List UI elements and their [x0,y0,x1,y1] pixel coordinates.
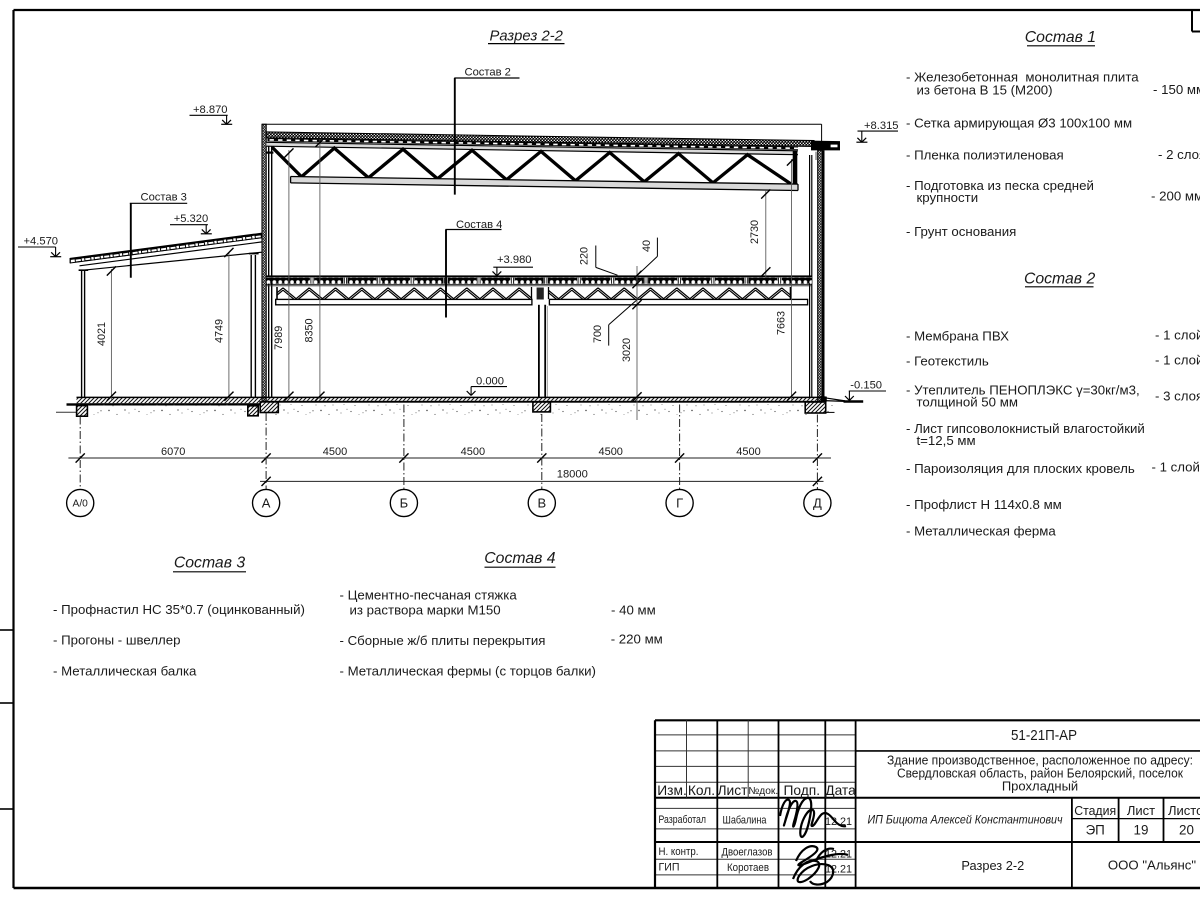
svg-text:+3.980: +3.980 [497,254,532,266]
svg-text:Лист: Лист [718,783,749,798]
svg-text:Состав 3: Состав 3 [141,191,187,203]
svg-text:ИП Бицюта Алексей Константинов: ИП Бицюта Алексей Константинович [868,813,1064,827]
svg-text:Кол.: Кол. [688,783,715,798]
svg-text:- 3 слоя: - 3 слоя [1155,389,1200,404]
svg-text:700: 700 [592,325,604,343]
svg-text:- 1 слой: - 1 слой [1155,353,1200,368]
svg-text:Г: Г [676,495,683,510]
svg-text:40: 40 [641,240,653,252]
svg-text:Двоеглазов: Двоеглазов [722,847,773,859]
svg-text:4749: 4749 [214,319,226,343]
svg-text:Состав 2: Состав 2 [465,66,511,78]
svg-text:t=12,5 мм: t=12,5 мм [917,433,976,448]
svg-text:- Грунт основания: - Грунт основания [906,224,1016,239]
svg-text:4500: 4500 [598,446,622,458]
svg-text:4500: 4500 [323,446,347,458]
svg-text:+8.315: +8.315 [864,120,899,132]
svg-text:7989: 7989 [273,326,285,350]
svg-text:2730: 2730 [749,220,761,244]
svg-text:Коротаев: Коротаев [727,862,769,874]
svg-text:крупности: крупности [917,190,979,205]
svg-text:- Сборные ж/б плиты перекрытия: - Сборные ж/б плиты перекрытия [340,633,546,648]
svg-text:- Профлист Н 114х0.8 мм: - Профлист Н 114х0.8 мм [906,497,1062,512]
svg-text:- Прогоны - швеллер: - Прогоны - швеллер [53,633,181,648]
svg-text:4500: 4500 [736,446,760,458]
svg-text:+5.320: +5.320 [174,213,209,225]
svg-text:- Пленка полиэтиленовая: - Пленка полиэтиленовая [906,148,1064,163]
svg-text:20: 20 [1179,823,1194,838]
svg-text:18000: 18000 [557,469,588,481]
svg-text:Дата: Дата [825,783,856,798]
svg-text:Б: Б [400,495,409,510]
svg-text:Н. контр.: Н. контр. [659,846,699,858]
svg-text:4500: 4500 [461,446,485,458]
svg-text:-0.150: -0.150 [850,379,882,391]
svg-text:Листов: Листов [1168,803,1200,818]
svg-text:- Геотекстиль: - Геотекстиль [906,354,989,369]
svg-text:Разработал: Разработал [659,814,707,826]
svg-text:- Мембрана ПВХ: - Мембрана ПВХ [906,329,1009,344]
svg-text:6070: 6070 [161,446,185,458]
svg-text:- Металлическая балка: - Металлическая балка [53,663,197,678]
svg-text:№док.: №док. [748,786,778,797]
svg-text:- Металлическая фермы (с торцо: - Металлическая фермы (с торцов балки) [340,664,596,679]
svg-text:Стадия: Стадия [1074,803,1116,818]
svg-text:7663: 7663 [776,311,788,335]
svg-text:В: В [537,495,546,510]
svg-text:- Пароизоляция для плоских кро: - Пароизоляция для плоских кровель [906,461,1135,476]
svg-text:Состав 2: Состав 2 [1024,271,1095,288]
svg-text:- 200 мм: - 200 мм [1151,189,1200,204]
svg-text:+8.870: +8.870 [193,104,228,116]
svg-text:ООО "Альянс": ООО "Альянс" [1108,857,1196,872]
svg-text:51-21П-АР: 51-21П-АР [1011,728,1077,744]
svg-text:- Профнастил НС 35*0.7 (оцинко: - Профнастил НС 35*0.7 (оцинкованный) [53,602,305,617]
svg-text:4021: 4021 [96,322,108,346]
svg-text:- 40 мм: - 40 мм [611,603,656,618]
svg-text:- Металлическая ферма: - Металлическая ферма [906,523,1056,538]
svg-text:220: 220 [579,247,591,265]
svg-text:- 220 мм: - 220 мм [611,632,663,647]
svg-text:Разрез 2-2: Разрез 2-2 [490,29,564,45]
svg-text:- 150 мм: - 150 мм [1153,82,1200,97]
svg-text:+4.570: +4.570 [24,235,59,247]
svg-text:19: 19 [1134,823,1149,838]
svg-text:Д: Д [813,495,822,510]
svg-text:Разрез 2-2: Разрез 2-2 [961,858,1024,873]
svg-text:8350: 8350 [304,318,316,342]
svg-text:Прохладный: Прохладный [1002,778,1078,793]
svg-text:- Сетка армирующая Ø3 100х100: - Сетка армирующая Ø3 100х100 мм [906,115,1132,130]
svg-text:0.000: 0.000 [476,375,504,387]
svg-text:Изм.: Изм. [657,783,687,798]
svg-text:12.21: 12.21 [825,816,852,828]
svg-text:Состав 1: Состав 1 [1025,29,1096,46]
svg-text:3020: 3020 [621,338,633,362]
svg-text:А: А [262,495,271,510]
svg-text:Состав 4: Состав 4 [484,550,555,567]
svg-text:Подп.: Подп. [783,783,820,798]
svg-text:Лист: Лист [1127,803,1155,818]
svg-text:толщиной 50 мм: толщиной 50 мм [917,394,1018,409]
svg-text:Состав 3: Состав 3 [174,555,245,572]
svg-text:ЭП: ЭП [1086,823,1105,838]
svg-text:- 1 слой: - 1 слой [1155,328,1200,343]
svg-text:- Цементно-песчаная стяжка: - Цементно-песчаная стяжка [340,587,518,602]
svg-text:из бетона В 15 (М200): из бетона В 15 (М200) [917,83,1053,98]
svg-text:- 2 слоя: - 2 слоя [1158,147,1200,162]
svg-text:- 1 слой: - 1 слой [1152,460,1200,475]
svg-text:А/0: А/0 [73,498,89,509]
svg-text:из раствора марки М150: из раствора марки М150 [350,603,501,618]
svg-text:Шабалина: Шабалина [723,815,768,827]
svg-text:ГИП: ГИП [659,862,680,874]
